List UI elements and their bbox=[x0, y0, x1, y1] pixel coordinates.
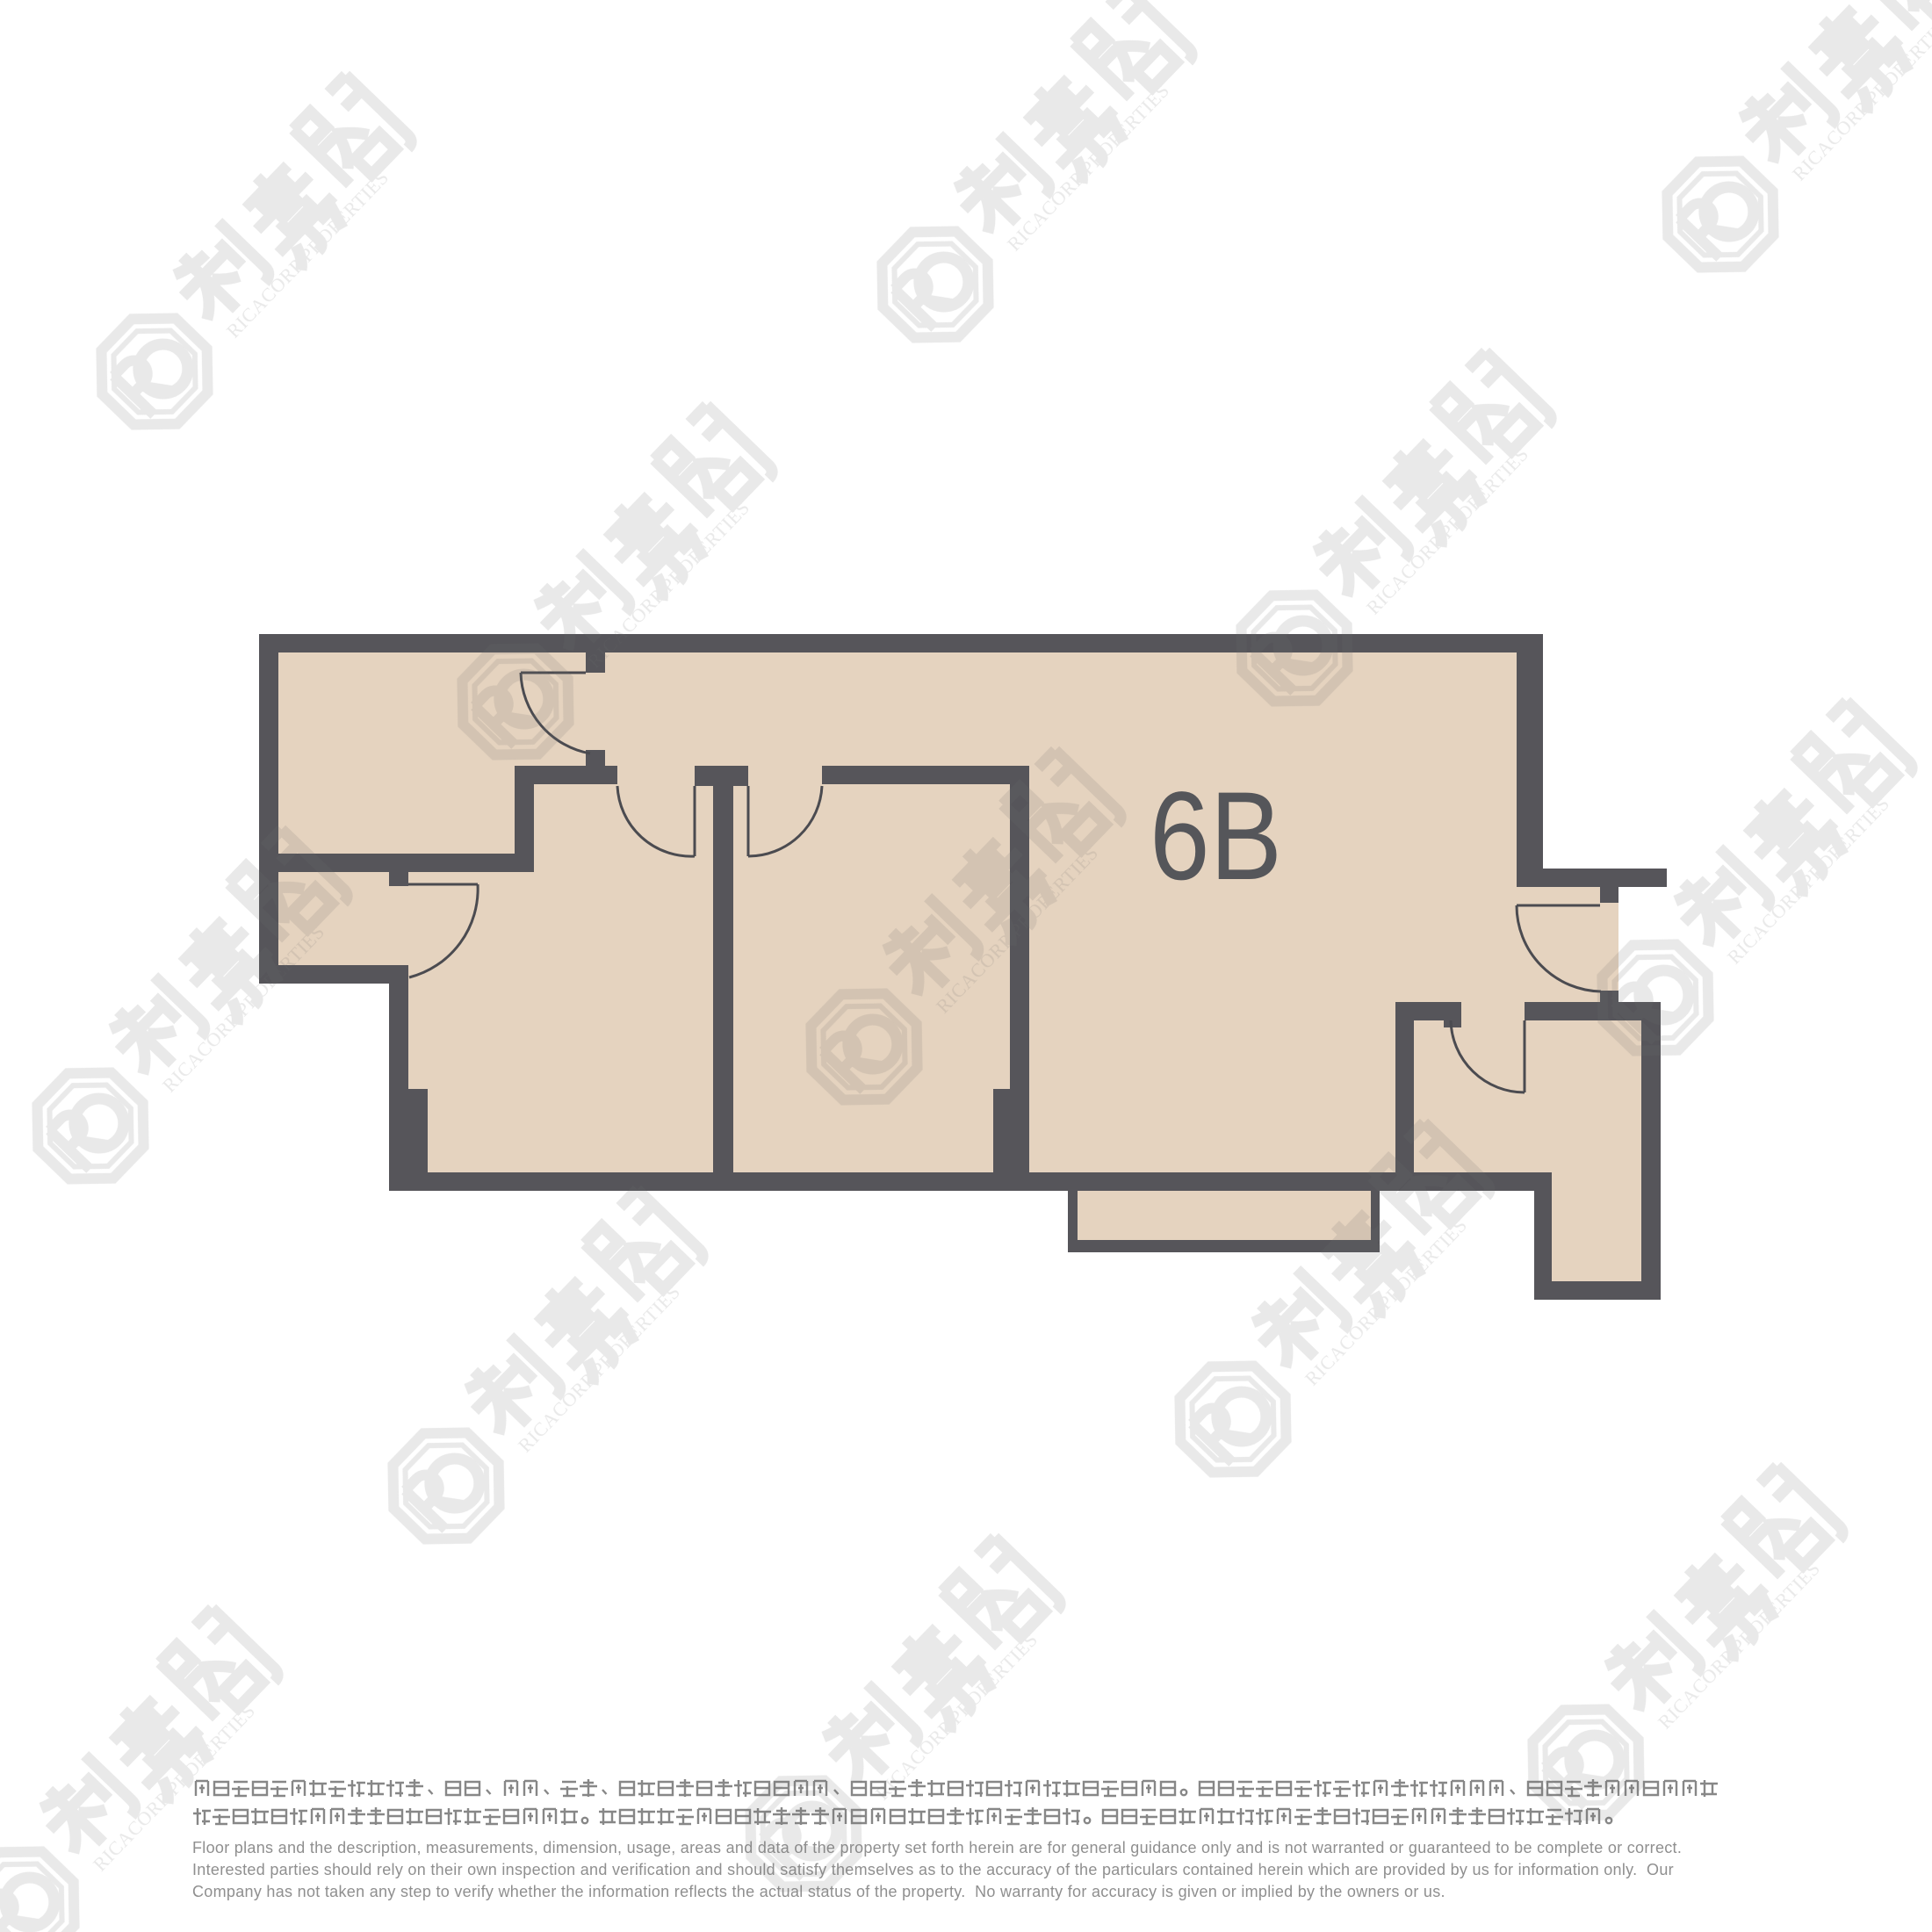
svg-text:Floor plans and the descriptio: Floor plans and the description, measure… bbox=[192, 1839, 1682, 1856]
svg-text:Interested parties should rely: Interested parties should rely on their … bbox=[192, 1861, 1674, 1878]
svg-text:6B: 6B bbox=[1150, 767, 1282, 906]
